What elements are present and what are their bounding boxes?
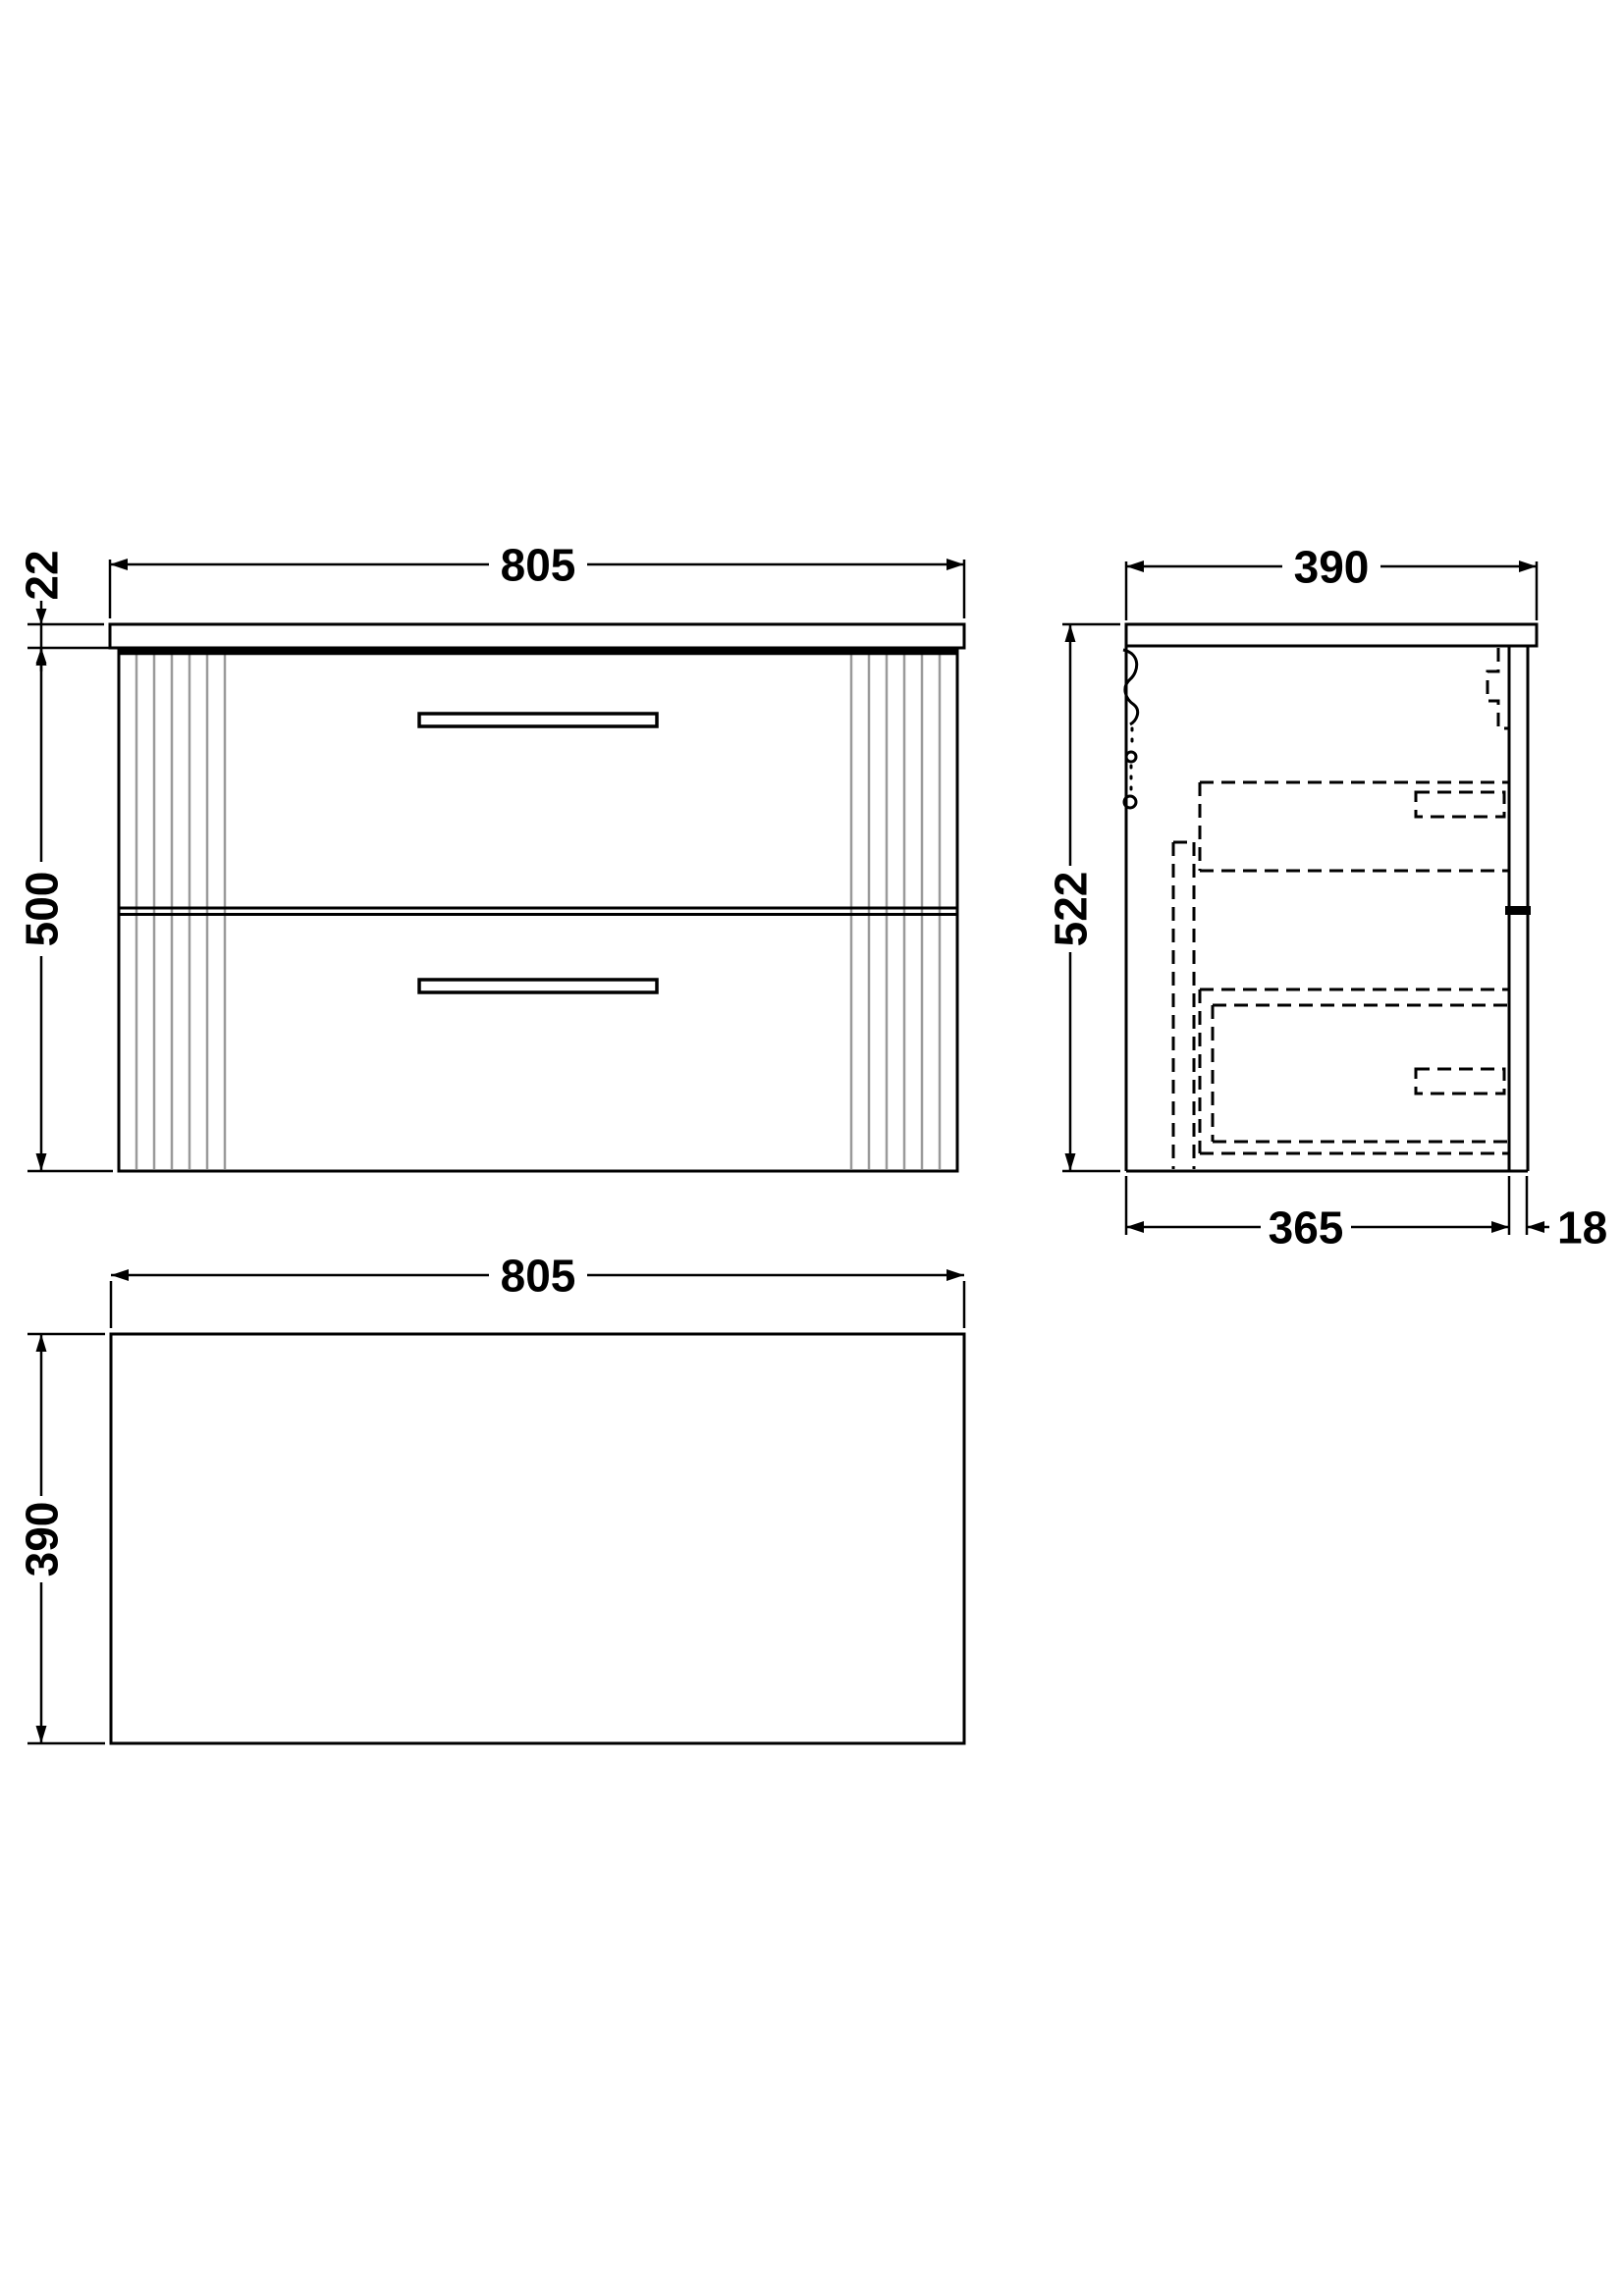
dim-front-width-label: 805 [501, 540, 576, 591]
front-view: 805 22 500 [17, 540, 964, 1171]
dim-plan-width-label: 805 [501, 1251, 576, 1302]
side-worktop [1126, 624, 1537, 646]
flute-lines-left [136, 654, 225, 1169]
dim-side-height: 522 [1046, 624, 1120, 1171]
dim-plan-width: 805 [111, 1251, 964, 1328]
side-drawer-front-gap [1505, 906, 1531, 915]
technical-drawing: 805 22 500 [0, 0, 1623, 2296]
dim-front-worktop-thickness-label: 22 [17, 550, 68, 600]
dim-side-carcass-depth: 365 18 [1126, 1176, 1607, 1254]
dim-front-height: 500 [17, 648, 113, 1171]
front-drawer-groove [119, 908, 957, 915]
front-lower-drawer-handle [419, 980, 657, 992]
front-upper-drawer-handle [419, 714, 657, 726]
dim-plan-depth: 390 [17, 1334, 105, 1743]
dim-side-depth: 390 [1126, 542, 1537, 620]
drawing-page: 805 22 500 [0, 0, 1623, 2296]
front-worktop [110, 624, 964, 648]
plan-worktop-outline [111, 1334, 964, 1743]
dim-front-width: 805 [110, 540, 964, 618]
flute-lines-right [851, 654, 940, 1169]
side-hidden-lines [1173, 648, 1510, 1169]
side-view: 390 522 365 18 [1046, 542, 1608, 1254]
dim-side-height-label: 522 [1046, 872, 1097, 947]
plan-view: 805 390 [17, 1251, 964, 1743]
dim-plan-depth-label: 390 [17, 1502, 68, 1577]
dim-front-height-label: 500 [17, 872, 68, 947]
dim-side-front-thickness-label: 18 [1557, 1202, 1607, 1254]
dim-front-worktop-thickness: 22 [17, 550, 110, 671]
dim-side-carcass-depth-label: 365 [1269, 1202, 1344, 1254]
dim-side-depth-label: 390 [1294, 542, 1370, 593]
